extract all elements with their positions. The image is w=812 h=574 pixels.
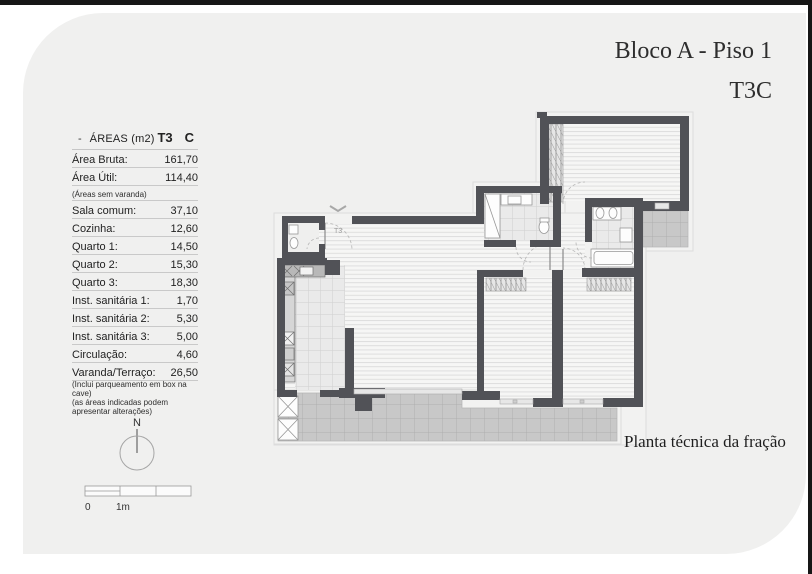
scale-bar: 0 1m — [83, 483, 203, 515]
area-row-value: 12,60 — [170, 223, 198, 235]
quarto2-wardrobe — [587, 278, 631, 291]
bath2-sink-2 — [609, 208, 617, 219]
area-row-value: 37,10 — [170, 205, 198, 217]
bath2-toilet — [620, 228, 632, 242]
room-quarto3-floor — [549, 124, 680, 201]
kitchen-floor — [295, 265, 345, 390]
area-row: Área Útil:114,40 — [72, 168, 198, 186]
area-row: (Inclui parqueamento em box na cave) — [72, 381, 198, 399]
area-row: (Áreas sem varanda) — [72, 186, 198, 201]
area-row-label: Quarto 3: — [72, 277, 118, 289]
fraction-title: T3C — [615, 78, 772, 104]
bath1-toilet — [539, 221, 549, 234]
north-arrow: N — [108, 413, 168, 475]
area-row-label: Inst. sanitária 2: — [72, 313, 150, 325]
area-row-value: 18,30 — [170, 277, 198, 289]
bath1-sink — [508, 196, 521, 204]
area-row-label: Inst. sanitária 1: — [72, 295, 150, 307]
area-row-value: 161,70 — [164, 154, 198, 166]
area-row-value: 1,70 — [177, 295, 198, 307]
areas-table: - ÁREAS (m2) T3 C Área Bruta:161,70Área … — [72, 130, 198, 417]
area-row-label: (Áreas sem varanda) — [72, 190, 147, 199]
wc-sink — [289, 225, 298, 234]
area-row: Quarto 2:15,30 — [72, 255, 198, 273]
plan-caption: Planta técnica da fração — [624, 432, 786, 452]
header-typology: T3 — [157, 130, 172, 145]
area-row-label: Inst. sanitária 3: — [72, 331, 150, 343]
area-row: Inst. sanitária 2:5,30 — [72, 309, 198, 327]
header-title: ÁREAS (m2) — [90, 133, 155, 145]
area-row-value: 5,30 — [177, 313, 198, 325]
entry-arrow-icon — [330, 206, 346, 211]
scale-1m-label: 1m — [116, 502, 130, 513]
areas-table-body: Área Bruta:161,70Área Útil:114,40(Áreas … — [72, 150, 198, 417]
area-row-label: Área Útil: — [72, 172, 117, 184]
wc-toilet — [290, 238, 298, 249]
title-block: Bloco A - Piso 1 T3C — [615, 38, 772, 104]
terrace-top-right-floor — [643, 211, 688, 247]
area-row: Circulação:4,60 — [72, 345, 198, 363]
area-row: Área Bruta:161,70 — [72, 150, 198, 168]
area-row-label: Quarto 1: — [72, 241, 118, 253]
scale-zero-label: 0 — [85, 502, 91, 513]
area-row: Quarto 3:18,30 — [72, 273, 198, 291]
header-fraction-letter: C — [185, 130, 194, 145]
area-row: Quarto 1:14,50 — [72, 237, 198, 255]
area-row: Inst. sanitária 3:5,00 — [72, 327, 198, 345]
area-row-label: Cozinha: — [72, 223, 115, 235]
area-row-label: (Inclui parqueamento em box na cave) — [72, 380, 198, 398]
quarto1-wardrobe — [486, 278, 526, 291]
quarto3-window — [655, 203, 669, 209]
area-row-label: Quarto 2: — [72, 259, 118, 271]
area-row: Varanda/Terraço:26,50 — [72, 363, 198, 381]
area-row-label: Circulação: — [72, 349, 127, 361]
north-label: N — [133, 417, 141, 429]
area-row-value: 26,50 — [170, 367, 198, 379]
area-row-label: Sala comum: — [72, 205, 136, 217]
area-row: Sala comum:37,10 — [72, 201, 198, 219]
area-row-value: 4,60 — [177, 349, 198, 361]
right-frame-bar — [808, 0, 812, 574]
area-row-value: 5,00 — [177, 331, 198, 343]
bath2-sink-1 — [596, 208, 604, 219]
area-row-value: 15,30 — [170, 259, 198, 271]
header-dash: - — [78, 133, 82, 145]
entry-label: T3 — [334, 228, 342, 235]
areas-table-header: - ÁREAS (m2) T3 C — [72, 130, 198, 150]
room-quarto2-floor — [563, 277, 634, 398]
area-row: Inst. sanitária 1:1,70 — [72, 291, 198, 309]
page-title: Bloco A - Piso 1 — [615, 38, 772, 64]
area-row-label: Varanda/Terraço: — [72, 367, 156, 379]
top-frame-bar — [0, 0, 812, 5]
area-row-value: 114,40 — [165, 172, 198, 184]
floor-plan: T3 — [260, 110, 770, 470]
room-quarto1-floor — [484, 277, 552, 398]
living-window — [354, 389, 462, 394]
area-row: Cozinha:12,60 — [72, 219, 198, 237]
area-row-value: 14,50 — [170, 241, 198, 253]
area-row-label: Área Bruta: — [72, 154, 128, 166]
